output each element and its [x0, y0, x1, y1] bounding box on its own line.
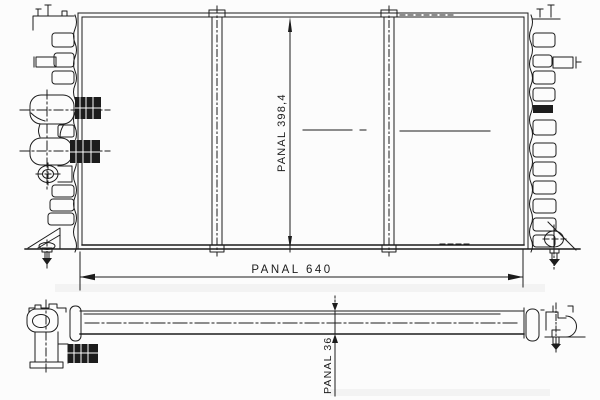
core-width-dimension-label: PANAL 640	[251, 264, 332, 276]
core-height-dimension-label: PANAL 398,4	[276, 93, 288, 172]
lower-hose-coupling	[70, 140, 100, 163]
profile-hose-coupling	[68, 344, 98, 363]
radiator-technical-drawing: PANAL 398,4 PANAL 640 PANAL 36	[0, 0, 600, 400]
paper-background	[0, 0, 600, 400]
upper-hose-coupling	[75, 97, 101, 119]
core-depth-dimension-label: PANAL 36	[322, 337, 334, 394]
technical-drawing-page: PANAL 398,4 PANAL 640 PANAL 36	[0, 0, 600, 400]
